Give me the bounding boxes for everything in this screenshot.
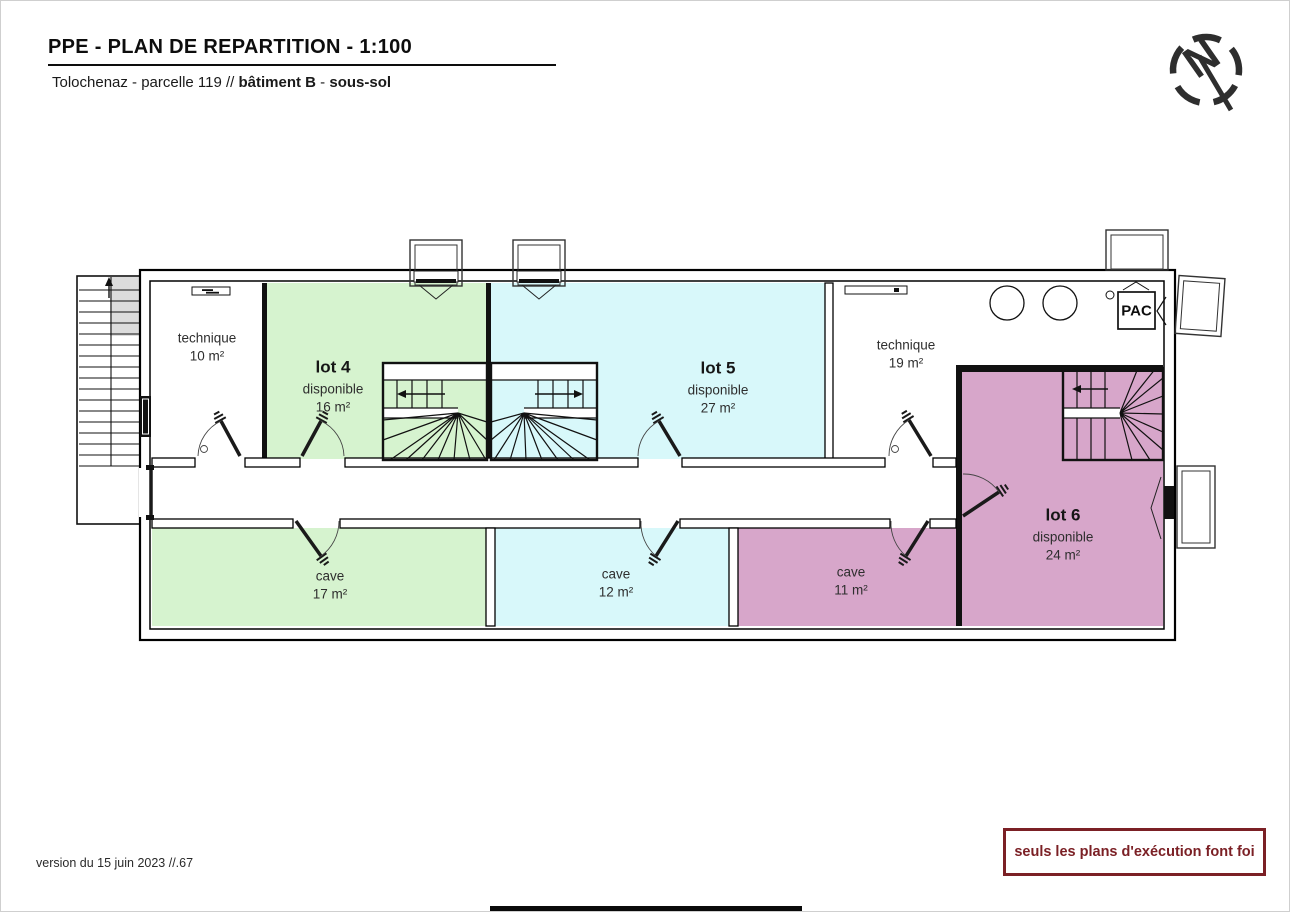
floor-plan: [0, 0, 1290, 912]
room-label-cave12: cave 12 m²: [599, 565, 634, 600]
room-label-technique10: technique 10 m²: [178, 329, 237, 364]
exterior-staircase: [77, 276, 144, 524]
room-area: 24 m²: [1033, 546, 1094, 564]
disclaimer-text: seuls les plans d'exécution font foi: [1014, 844, 1254, 860]
room-name: lot 5: [688, 357, 749, 379]
light-well-lot6: [1177, 466, 1215, 548]
bottom-scan-bar: [490, 906, 802, 912]
room-area: 16 m²: [303, 398, 364, 416]
room-label-cave17: cave 17 m²: [313, 567, 348, 602]
room-status: disponible: [688, 382, 749, 400]
version-note: version du 15 juin 2023 //.67: [36, 856, 193, 870]
light-well-east-top: [1175, 275, 1225, 336]
room-status: disponible: [303, 381, 364, 399]
room-status: disponible: [1033, 529, 1094, 547]
room-label-lot4: lot 4 disponible 16 m²: [303, 356, 364, 415]
room-name: cave: [599, 565, 634, 583]
entrance-door: [139, 465, 154, 520]
light-well-north-east: [1106, 230, 1168, 270]
vent-technique10: [192, 287, 230, 295]
room-area: 11 m²: [834, 581, 868, 599]
room-area: 10 m²: [178, 347, 237, 365]
room-area: 19 m²: [877, 354, 936, 372]
room-label-cave11: cave 11 m²: [834, 563, 868, 598]
vent-technique19: [845, 286, 907, 294]
tank-icon: [1043, 286, 1077, 320]
room-area: 17 m²: [313, 585, 348, 603]
left-wall-window: [140, 396, 151, 437]
room-name: technique: [178, 329, 237, 347]
room-area: 27 m²: [688, 399, 749, 417]
room-name: technique: [877, 336, 936, 354]
room-name: lot 6: [1033, 504, 1094, 526]
room-area: 12 m²: [599, 583, 634, 601]
room-label-lot6: lot 6 disponible 24 m²: [1033, 504, 1094, 563]
disclaimer-box: seuls les plans d'exécution font foi: [1003, 828, 1266, 876]
room-label-technique19: technique 19 m²: [877, 336, 936, 371]
room-name: lot 4: [303, 356, 364, 378]
tank-icon: [990, 286, 1024, 320]
heat-pump-label: PAC: [1121, 302, 1152, 319]
room-name: cave: [313, 567, 348, 585]
room-name: cave: [834, 563, 868, 581]
room-label-lot5: lot 5 disponible 27 m²: [688, 357, 749, 416]
